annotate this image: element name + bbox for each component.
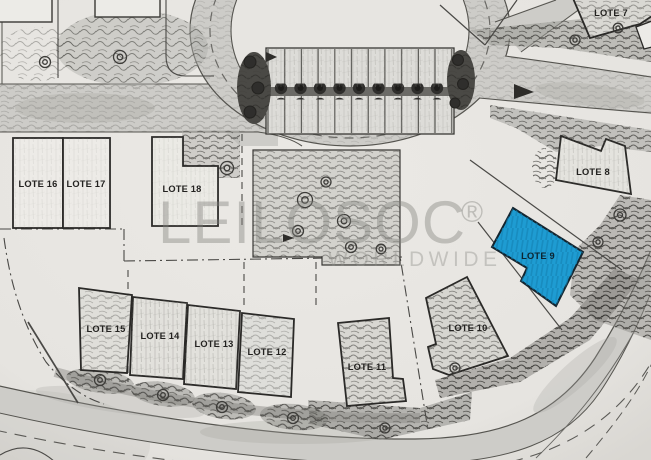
lot-label-lote-9: LOTE 9 [521, 251, 555, 261]
lot-label-lote-16: LOTE 16 [18, 179, 57, 189]
lot-label-lote-17: LOTE 17 [66, 179, 105, 189]
lot-label-lote-13: LOTE 13 [194, 339, 233, 349]
lot-label-lote-8: LOTE 8 [576, 167, 610, 177]
parking-texture [267, 49, 453, 87]
building-outline [95, 0, 160, 17]
building-outline [0, 0, 52, 22]
registered-trademark-icon: ® [461, 196, 483, 229]
site-plan-drawing: LOTE 7 LOTE 8 LOTE 9 LOTE 10 LOTE 11 LOT… [0, 0, 651, 460]
lot-label-lote-10: LOTE 10 [448, 323, 487, 333]
parking-court [237, 48, 475, 134]
lot-label-lote-14: LOTE 14 [140, 331, 180, 341]
lot-label-lote-7: LOTE 7 [594, 8, 628, 18]
lot-label-lote-12: LOTE 12 [247, 347, 286, 357]
veg-top-left-2 [0, 27, 78, 81]
parking-texture [267, 96, 453, 133]
lot-label-lote-15: LOTE 15 [86, 324, 125, 334]
watermark-brand: LEILOSOC [158, 189, 466, 256]
watermark-tagline: WORLDWIDE [328, 248, 502, 271]
site-plan-scan: LOTE 7 LOTE 8 LOTE 9 LOTE 10 LOTE 11 LOT… [0, 0, 651, 460]
veg-top-left-texture [56, 10, 208, 86]
road-shading [15, 93, 155, 123]
lot-label-lote-11: LOTE 11 [348, 362, 387, 372]
